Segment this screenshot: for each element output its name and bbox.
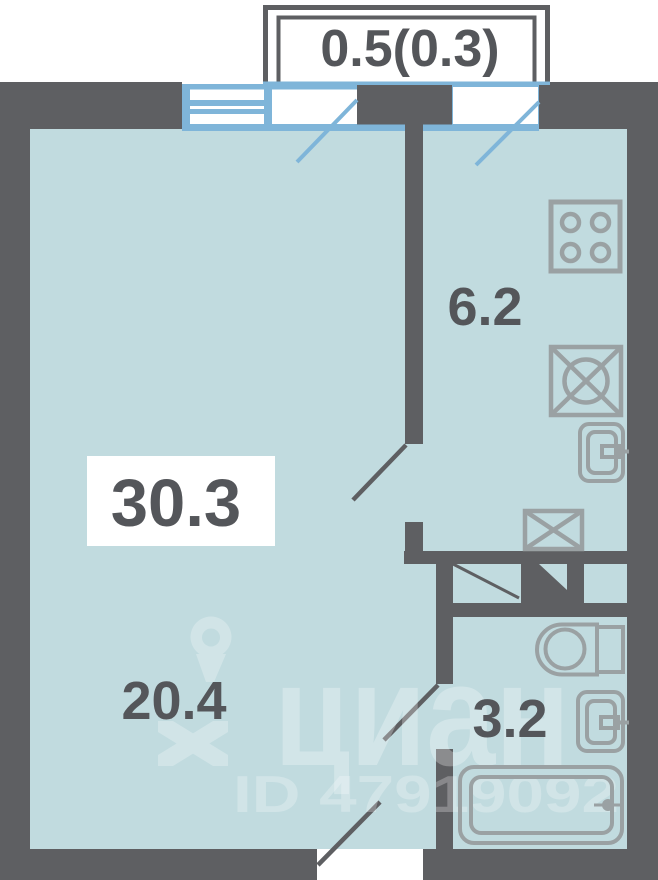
svg-text:0.5(0.3): 0.5(0.3): [320, 20, 499, 78]
svg-text:20.4: 20.4: [121, 671, 226, 731]
svg-text:3.2: 3.2: [472, 689, 547, 749]
svg-text:ID 47919092: ID 47919092: [233, 766, 619, 824]
svg-text:30.3: 30.3: [111, 466, 241, 541]
svg-text:6.2: 6.2: [447, 277, 522, 337]
